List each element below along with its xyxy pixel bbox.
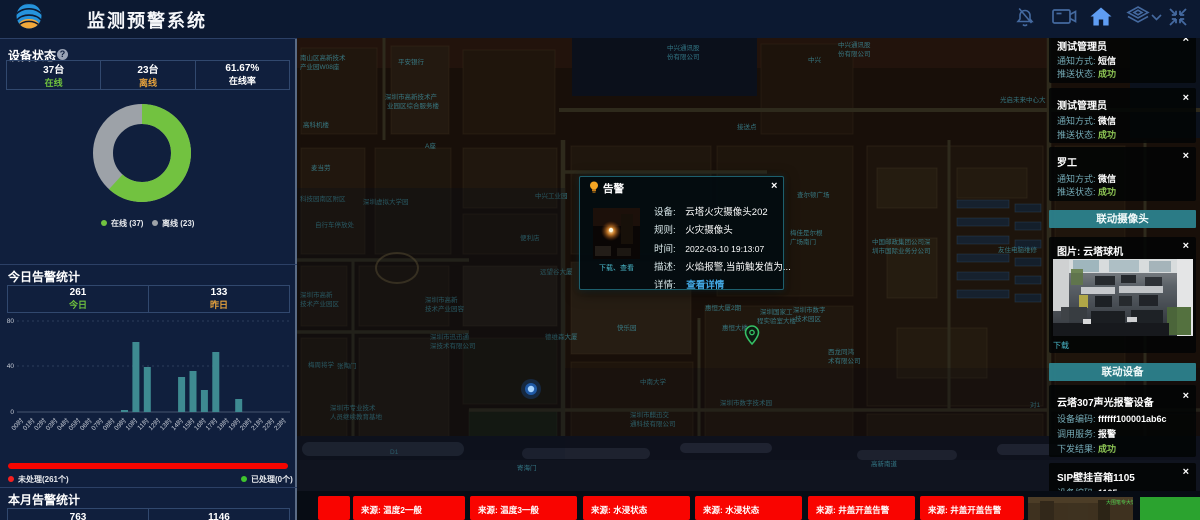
svg-text:大围笔专大饭店: 大围笔专大饭店 bbox=[1106, 499, 1133, 506]
svg-text:40: 40 bbox=[7, 363, 15, 370]
svg-text:80: 80 bbox=[7, 318, 15, 325]
svg-text:0: 0 bbox=[10, 409, 14, 416]
